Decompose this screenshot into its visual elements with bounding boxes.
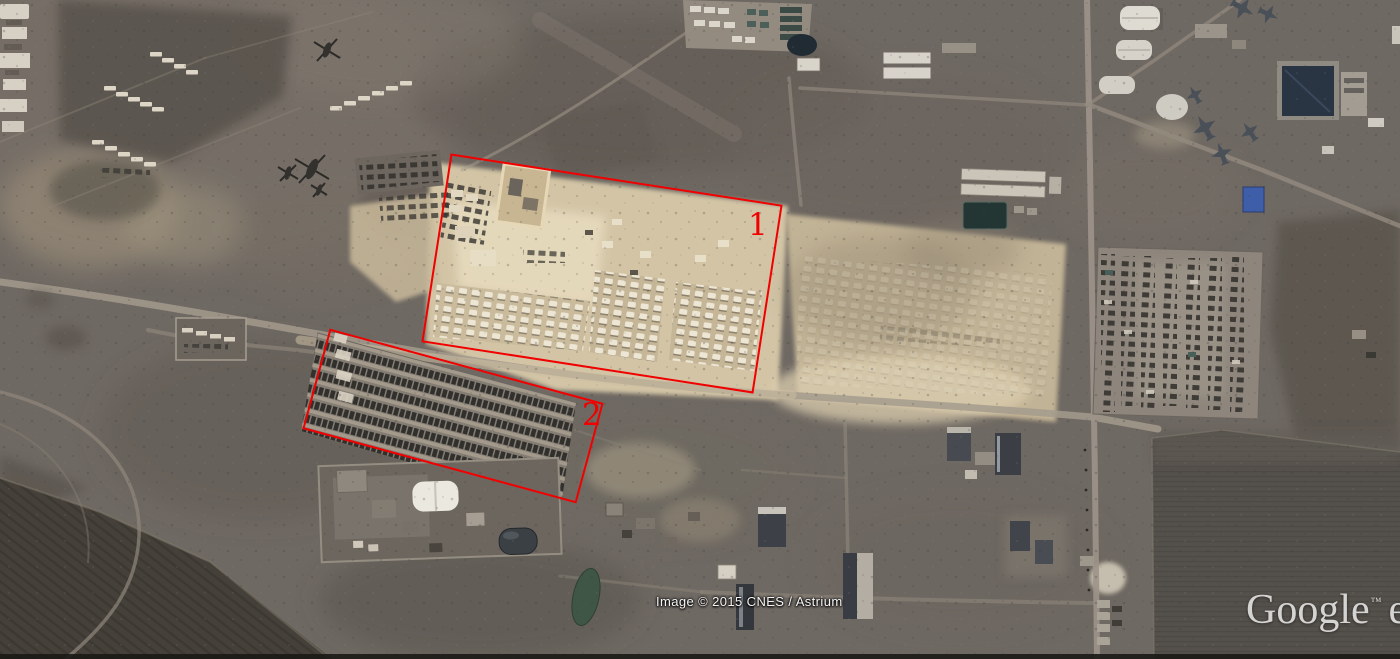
imagery-attribution: Image © 2015 CNES / Astrium xyxy=(656,594,843,609)
google-earth-viewport[interactable]: 1 2 Image © 2015 CNES / Astrium Google™e xyxy=(0,0,1400,659)
watermark-clipped-text: e xyxy=(1388,587,1400,633)
annotation-label-1: 1 xyxy=(748,210,768,241)
bottom-edge-strip xyxy=(0,654,1400,659)
watermark-trademark-icon: ™ xyxy=(1371,596,1382,608)
annotation-label-2: 2 xyxy=(582,400,602,431)
google-earth-watermark: Google™e xyxy=(1246,589,1400,631)
watermark-brand: Google xyxy=(1246,587,1370,633)
